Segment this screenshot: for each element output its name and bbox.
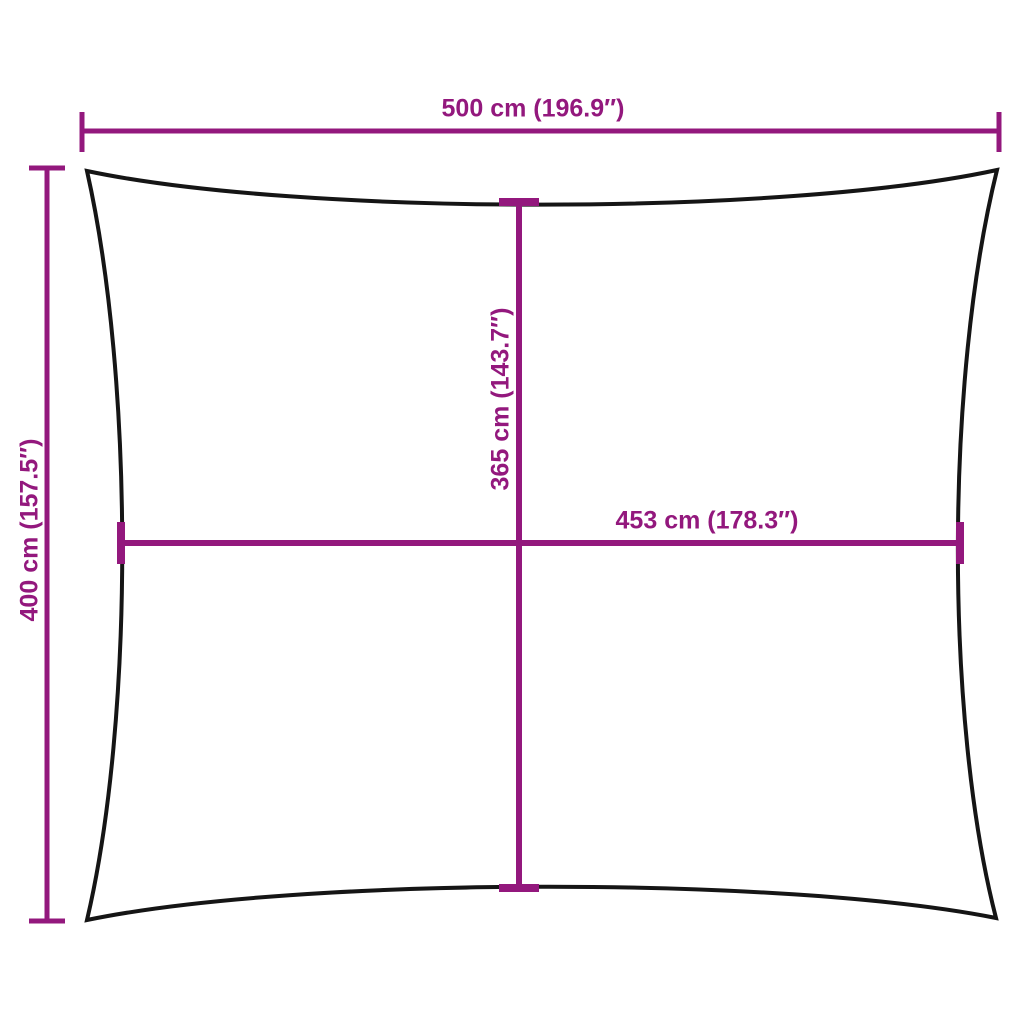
center-height-label: 365 cm (143.7″)	[489, 308, 514, 491]
dimension-diagram: 500 cm (196.9″) 400 cm (157.5″) 365 cm (…	[0, 0, 1024, 1024]
diagram-graphics	[0, 0, 1024, 1024]
overall-height-label: 400 cm (157.5″)	[18, 439, 43, 622]
center-width-label: 453 cm (178.3″)	[616, 509, 799, 534]
overall-width-label: 500 cm (196.9″)	[442, 97, 625, 122]
